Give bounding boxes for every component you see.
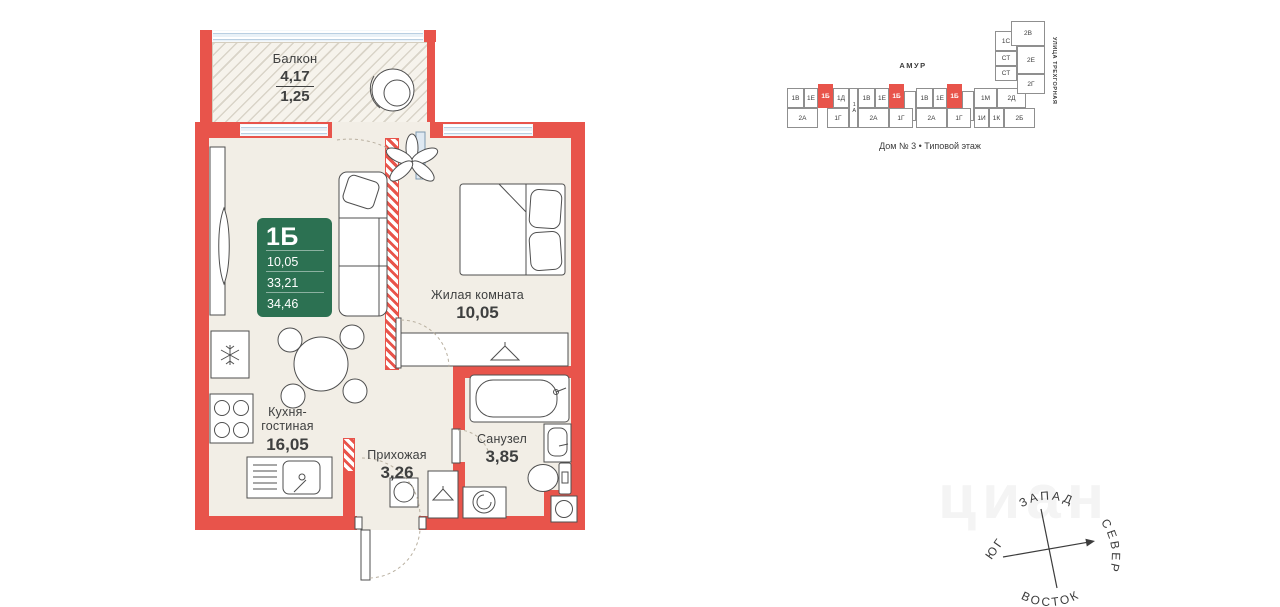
bathroom-area: 3,85	[462, 447, 542, 467]
living-room-label: Жилая комната 10,05	[420, 288, 535, 323]
living-room-name: Жилая комната	[420, 288, 535, 302]
balcony-chair-icon	[370, 69, 414, 111]
compass-west-label: ЗАПАД	[1017, 488, 1077, 510]
schematic-unit-1Е[interactable]: 1Е	[933, 88, 947, 108]
plant-icon	[384, 134, 440, 185]
bathroom-label: Санузел 3,85	[462, 432, 542, 467]
schematic-unit-1Г[interactable]: 1Г	[827, 108, 849, 128]
badge-total-area: 34,46	[266, 292, 324, 313]
schematic-unit-1В[interactable]: 1В	[787, 88, 804, 108]
kitchen-name-line1: Кухня-	[240, 405, 335, 419]
schematic-unit-2А[interactable]: 2А	[916, 108, 947, 128]
living-room-area: 10,05	[420, 303, 535, 323]
sofa-icon	[339, 172, 387, 316]
schematic-unit-1В[interactable]: 1В	[916, 88, 933, 108]
schematic-unit-1Г[interactable]: 1Г	[947, 108, 971, 128]
closet-icon	[400, 333, 568, 366]
schematic-unit-2В[interactable]: 2В	[1011, 21, 1045, 46]
kitchen-area: 16,05	[240, 435, 335, 455]
hallway-label: Прихожая 3,26	[356, 448, 438, 483]
furniture-layer	[195, 25, 595, 595]
schematic-unit-1И[interactable]: 1И	[974, 108, 989, 128]
bathroom-name: Санузел	[462, 432, 542, 446]
schematic-unit-2Б[interactable]: 2Б	[1004, 108, 1035, 128]
compass-cross	[1003, 509, 1095, 588]
schematic-unit-1Б[interactable]: 1Б	[818, 84, 833, 108]
dining-table-icon	[278, 325, 367, 408]
bathtub-icon	[470, 375, 569, 422]
compass-east-label: ВОСТОК	[1019, 587, 1082, 606]
balcony-area: 4,17	[276, 68, 313, 87]
balcony-label: Балкон 4,17 1,25	[245, 52, 345, 105]
schematic-unit-2Е[interactable]: 2Е	[1017, 46, 1045, 74]
compass-south-label: ЮГ	[982, 534, 1007, 561]
balcony-area-reduced: 1,25	[245, 88, 345, 105]
toilet-icon	[528, 463, 571, 494]
schematic-unit-1Б[interactable]: 1Б	[947, 84, 962, 108]
tv-unit-icon	[210, 147, 229, 315]
schematic-unit-1Е[interactable]: 1Е	[875, 88, 889, 108]
schematic-unit-СТ[interactable]: СТ	[995, 66, 1017, 81]
bath-sink-icon	[544, 424, 571, 462]
schematic-unit-2А[interactable]: 2А	[787, 108, 818, 128]
kitchen-name-line2: гостиная	[240, 419, 335, 433]
schematic-unit-1Г[interactable]: 1Г	[889, 108, 913, 128]
schematic-unit-1Б[interactable]: 1Б	[889, 84, 904, 108]
bed-icon	[460, 184, 565, 275]
schematic-unit-1А[interactable]: 1А	[849, 88, 858, 128]
schematic-unit-2А[interactable]: 2А	[858, 108, 889, 128]
apartment-type: 1Б	[266, 225, 324, 250]
apartment-plan: Балкон 4,17 1,25 Жилая комната 10,05 Кух…	[0, 0, 640, 607]
schematic-unit-1Е[interactable]: 1Е	[804, 88, 818, 108]
compass: ЗАПАД ВОСТОК СЕВЕР ЮГ	[975, 478, 1125, 606]
balcony-name: Балкон	[245, 52, 345, 67]
drain-icon	[551, 496, 577, 522]
schematic-unit-СТ[interactable]: СТ	[995, 51, 1017, 66]
floor-caption: Дом № 3 • Типовой этаж	[820, 141, 1040, 151]
schematic-unit-1К[interactable]: 1К	[989, 108, 1004, 128]
schematic-unit-1М[interactable]: 1М	[974, 88, 997, 108]
hallway-name: Прихожая	[356, 448, 438, 462]
schematic-unit-2Г[interactable]: 2Г	[1017, 74, 1045, 94]
hallway-area: 3,26	[356, 463, 438, 483]
compass-north-label: СЕВЕР	[1098, 516, 1123, 575]
apartment-type-badge: 1Б 10,05 33,21 34,46	[257, 218, 332, 317]
schematic-unit-1В[interactable]: 1В	[858, 88, 875, 108]
schematic-unit-1Д[interactable]: 1Д	[833, 88, 849, 108]
kitchen-label: Кухня- гостиная 16,05	[240, 405, 335, 454]
washer-icon	[463, 487, 506, 518]
fridge-icon	[211, 331, 249, 378]
building-schematic: АМУР УЛИЦА ТРЕХГОРНАЯ 1В1Е1Б1Д1А1В1Е1Б1В…	[785, 15, 1075, 165]
badge-area: 33,21	[266, 271, 324, 292]
badge-living-area: 10,05	[266, 250, 324, 271]
floorplan-page: Балкон 4,17 1,25 Жилая комната 10,05 Кух…	[0, 0, 1280, 607]
kitchen-sink-icon	[247, 457, 332, 498]
